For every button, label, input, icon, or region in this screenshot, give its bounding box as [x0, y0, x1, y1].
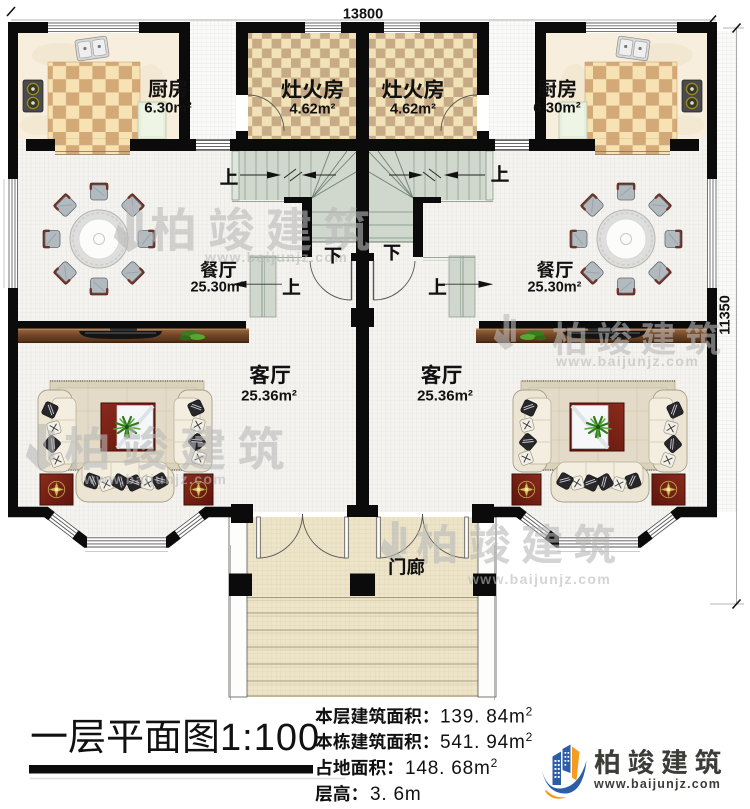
svg-text:139. 84m2: 139. 84m2	[440, 705, 533, 728]
svg-text:www.baijunjz.com: www.baijunjz.com	[467, 571, 611, 587]
svg-text:25.36m²: 25.36m²	[417, 388, 473, 405]
svg-text:148. 68m2: 148. 68m2	[405, 756, 498, 779]
svg-text:6.30m²: 6.30m²	[533, 100, 581, 117]
svg-text:11350: 11350	[718, 295, 734, 335]
svg-text:www.baijunjz.com: www.baijunjz.com	[83, 471, 227, 487]
svg-text:3. 6m: 3. 6m	[370, 784, 422, 805]
svg-text:25.30m²: 25.30m²	[527, 280, 581, 296]
svg-text:25.36m²: 25.36m²	[241, 388, 297, 405]
svg-text:www.baijunjz.com: www.baijunjz.com	[593, 777, 721, 791]
svg-text:4.62m²: 4.62m²	[290, 102, 336, 118]
svg-text:13800: 13800	[343, 7, 383, 23]
svg-text:541. 94m2: 541. 94m2	[440, 730, 533, 753]
svg-text:6.30m²: 6.30m²	[144, 100, 192, 117]
svg-text:4.62m²: 4.62m²	[390, 102, 436, 118]
svg-text:25.30m²: 25.30m²	[190, 280, 244, 296]
svg-text:www.baijunjz.com: www.baijunjz.com	[555, 353, 699, 369]
svg-text:1:100: 1:100	[220, 717, 320, 759]
